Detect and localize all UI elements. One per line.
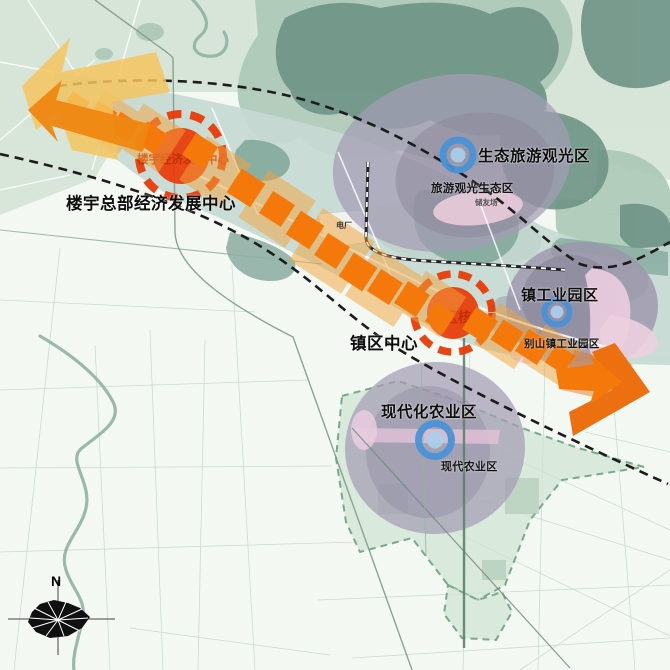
planning-map: 楼宇经济发展中心 镇区核心 bbox=[0, 0, 670, 670]
base-map: 楼宇经济发展中心 镇区核心 bbox=[0, 0, 670, 670]
